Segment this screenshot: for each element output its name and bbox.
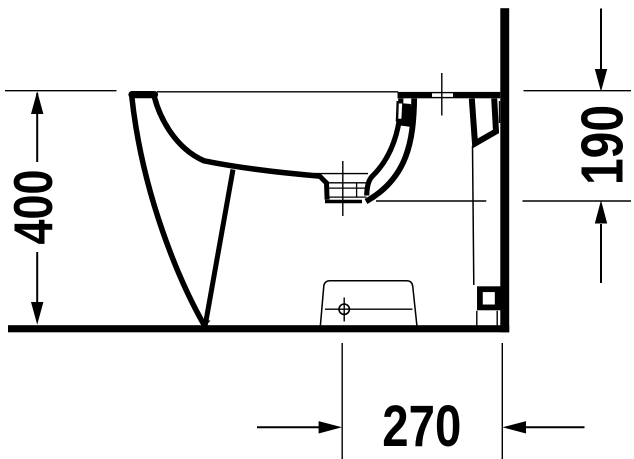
svg-text:400: 400 bbox=[2, 170, 64, 245]
svg-text:190: 190 bbox=[570, 105, 634, 185]
svg-text:270: 270 bbox=[382, 394, 461, 459]
